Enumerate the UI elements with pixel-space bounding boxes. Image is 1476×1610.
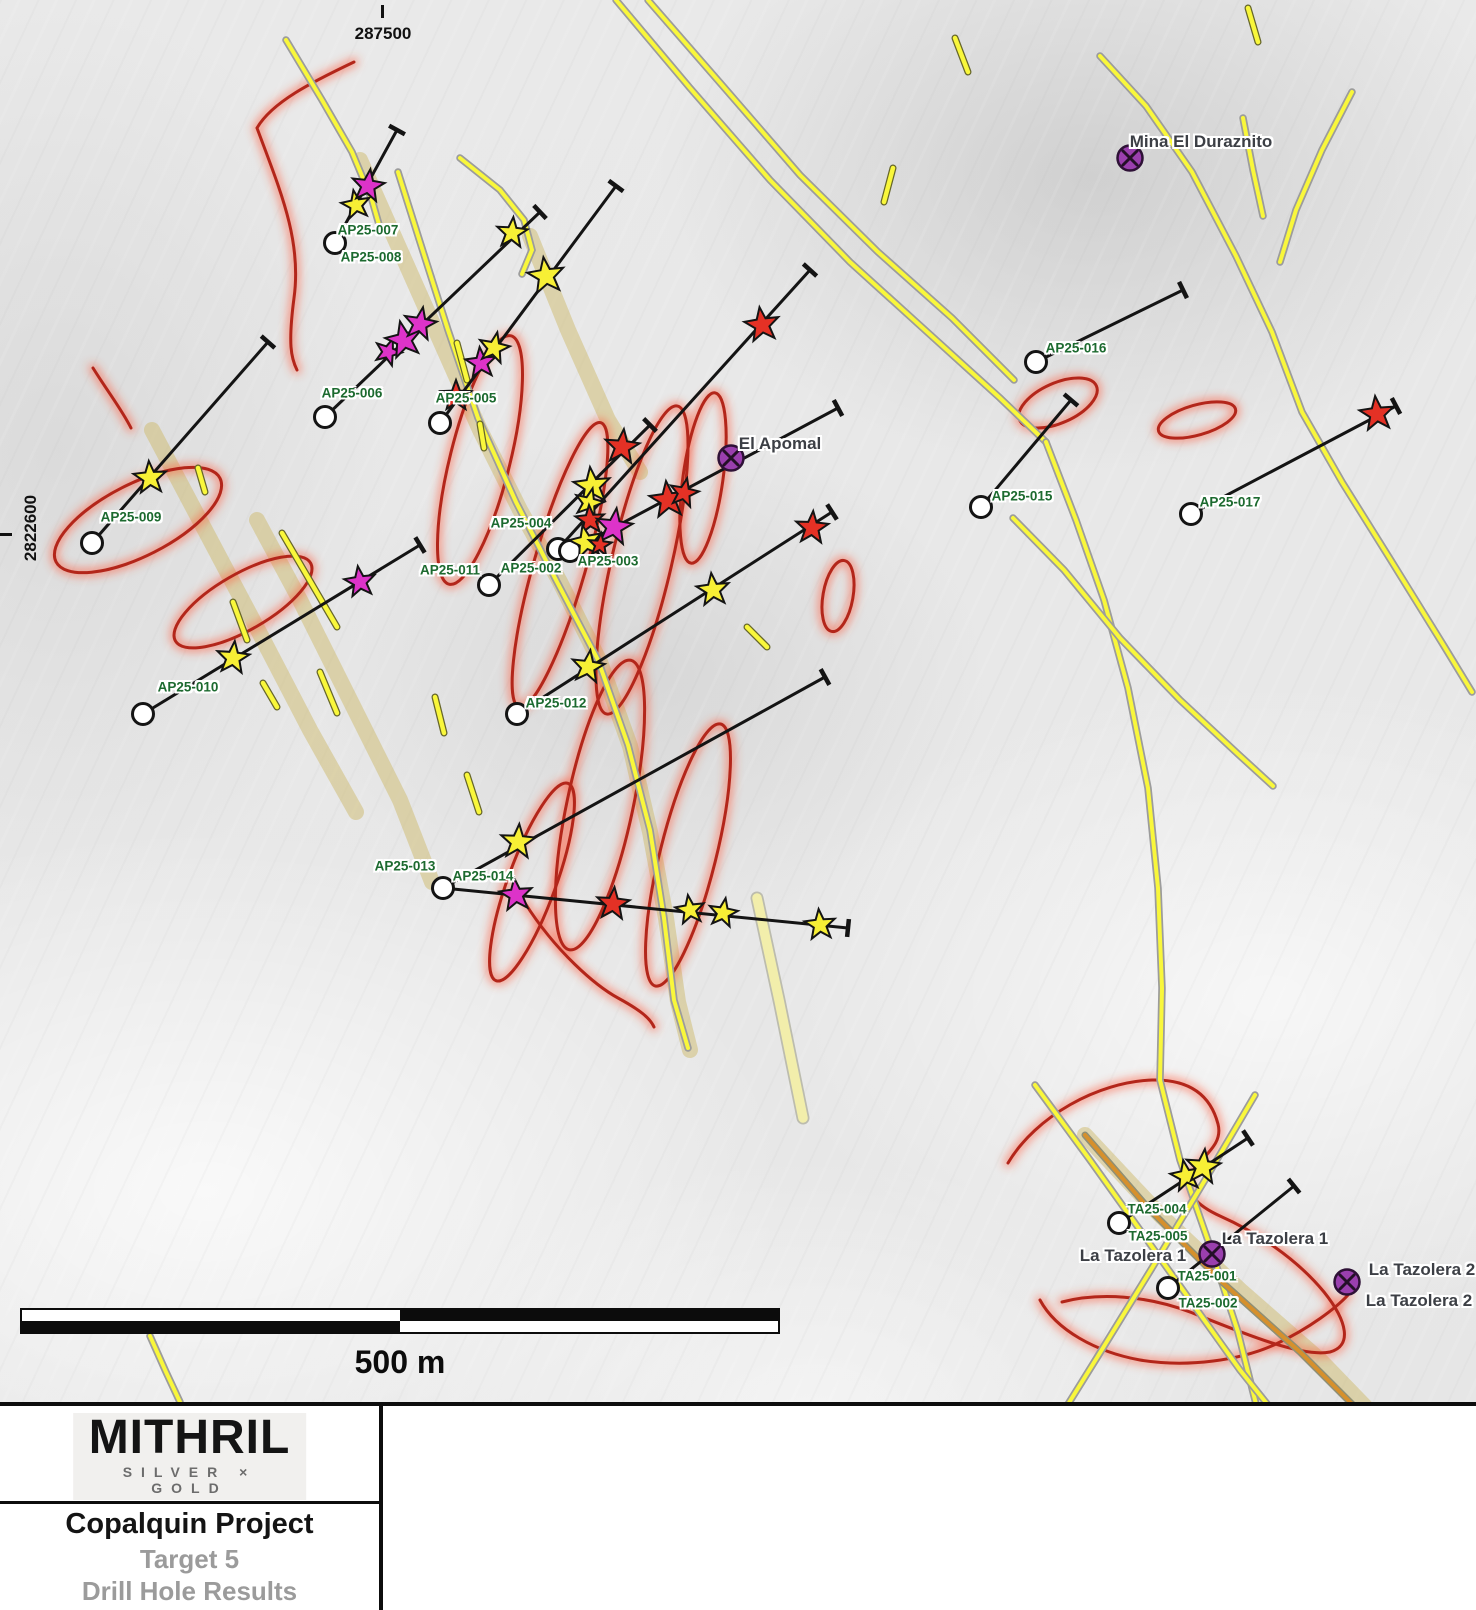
legend-panel: MITHRIL SILVER × GOLD Copalquin Project …	[0, 1402, 1476, 1610]
drill-hole-label: AP25-014	[453, 869, 514, 884]
red-outline-glow	[40, 62, 1348, 1363]
intercept-star-y	[804, 909, 834, 939]
vein-trace-casing	[616, 0, 1046, 442]
mine-name-label: La Tazolera 1	[1222, 1229, 1328, 1249]
vein-traces	[150, 0, 1472, 1434]
target-title: Target 5	[0, 1544, 379, 1575]
figure-subtitle: Drill Hole Results	[0, 1576, 379, 1607]
intercept-star-r	[1359, 396, 1393, 430]
title-divider	[0, 1501, 379, 1504]
drill-collar	[82, 533, 103, 554]
drill-trace-end-tick	[827, 504, 837, 519]
drill-hole-label: AP25-013	[375, 859, 436, 874]
vein-segment	[467, 775, 479, 812]
intercept-star-m	[344, 566, 374, 596]
scale-bar	[20, 1308, 780, 1334]
vein-segment	[747, 627, 767, 647]
grid-tick-north	[381, 5, 384, 18]
drill-trace	[443, 677, 825, 888]
red-outline	[93, 368, 131, 428]
intercept-star-y	[696, 573, 728, 605]
drill-hole-label: AP25-017	[1200, 495, 1261, 510]
company-logo: MITHRIL SILVER × GOLD	[73, 1413, 307, 1500]
logo-brand-text: MITHRIL	[89, 1413, 291, 1463]
drill-hole-label: TA25-005	[1128, 1229, 1187, 1244]
drill-hole-label: AP25-012	[526, 696, 587, 711]
drill-collar	[430, 413, 451, 434]
drill-hole-label: AP25-016	[1046, 341, 1107, 356]
intercept-star-y	[675, 895, 703, 923]
grid-coordinate-easting: 287500	[355, 24, 412, 44]
drill-trace-end-tick	[609, 181, 623, 192]
alteration-corridors	[152, 160, 1378, 1420]
drill-hole-label: TA25-002	[1178, 1296, 1237, 1311]
drill-collar	[479, 575, 500, 596]
drill-trace-end-tick	[847, 919, 849, 937]
red-outline	[817, 558, 859, 634]
drill-collar	[1026, 352, 1047, 373]
mine-name-label: La Tazolera 1	[1080, 1246, 1186, 1266]
intercept-star-r	[597, 887, 629, 919]
drill-hole-label: AP25-008	[341, 250, 402, 265]
drill-hole-label: TA25-001	[1177, 1269, 1236, 1284]
drill-hole-label: AP25-007	[338, 223, 399, 238]
red-outline	[257, 62, 354, 370]
drill-collar	[315, 407, 336, 428]
drill-collar	[1158, 1278, 1179, 1299]
drill-trace-end-tick	[415, 537, 424, 552]
drill-collar	[1109, 1213, 1130, 1234]
grid-tick-west	[0, 533, 12, 536]
map-figure: AP25-007AP25-008AP25-006AP25-005AP25-009…	[0, 0, 1476, 1610]
mine-name-label: La Tazolera 2	[1366, 1291, 1472, 1311]
drill-hole-label: AP25-002	[501, 561, 562, 576]
intercept-star-y	[710, 898, 738, 926]
map-canvas	[0, 0, 1476, 1610]
drill-collar	[507, 704, 528, 725]
alteration-corridor	[257, 520, 432, 882]
project-title: Copalquin Project	[0, 1508, 379, 1541]
drill-hole-label: AP25-011	[420, 563, 480, 578]
drill-collar	[971, 497, 992, 518]
red-outlines	[40, 62, 1348, 1363]
title-block: MITHRIL SILVER × GOLD Copalquin Project …	[0, 1406, 383, 1610]
vein-trace	[150, 1336, 180, 1402]
drill-trace-end-tick	[1243, 1130, 1253, 1145]
drill-hole-label: AP25-015	[992, 489, 1053, 504]
drill-collar	[433, 878, 454, 899]
grid-coordinate-northing: 2822600	[21, 495, 41, 561]
drill-hole-label: AP25-006	[322, 386, 383, 401]
vein-segment	[263, 683, 277, 707]
drill-hole-label: AP25-005	[436, 391, 497, 406]
drill-hole-label: TA25-004	[1127, 1202, 1186, 1217]
vein-trace	[757, 898, 803, 1118]
vein-trace	[460, 158, 532, 274]
drill-hole-label: AP25-003	[578, 554, 639, 569]
mine-name-label: La Tazolera 2	[1369, 1260, 1475, 1280]
drill-collar	[1181, 504, 1202, 525]
scale-bar-label: 500 m	[355, 1344, 446, 1381]
mine-name-label: El Apomal	[739, 434, 822, 454]
drill-hole-label: AP25-010	[158, 680, 219, 695]
vein-segment	[955, 38, 968, 72]
logo-subtitle-text: SILVER × GOLD	[89, 1464, 291, 1496]
drill-hole-label: AP25-009	[101, 510, 162, 525]
drill-traces	[92, 126, 1400, 1288]
vein-trace-casing	[1280, 92, 1352, 262]
vein-trace	[616, 0, 1046, 442]
drill-collar	[133, 704, 154, 725]
drill-hole-label: AP25-004	[491, 516, 552, 531]
mine-name-label: Mina El Duraznito	[1130, 132, 1273, 152]
